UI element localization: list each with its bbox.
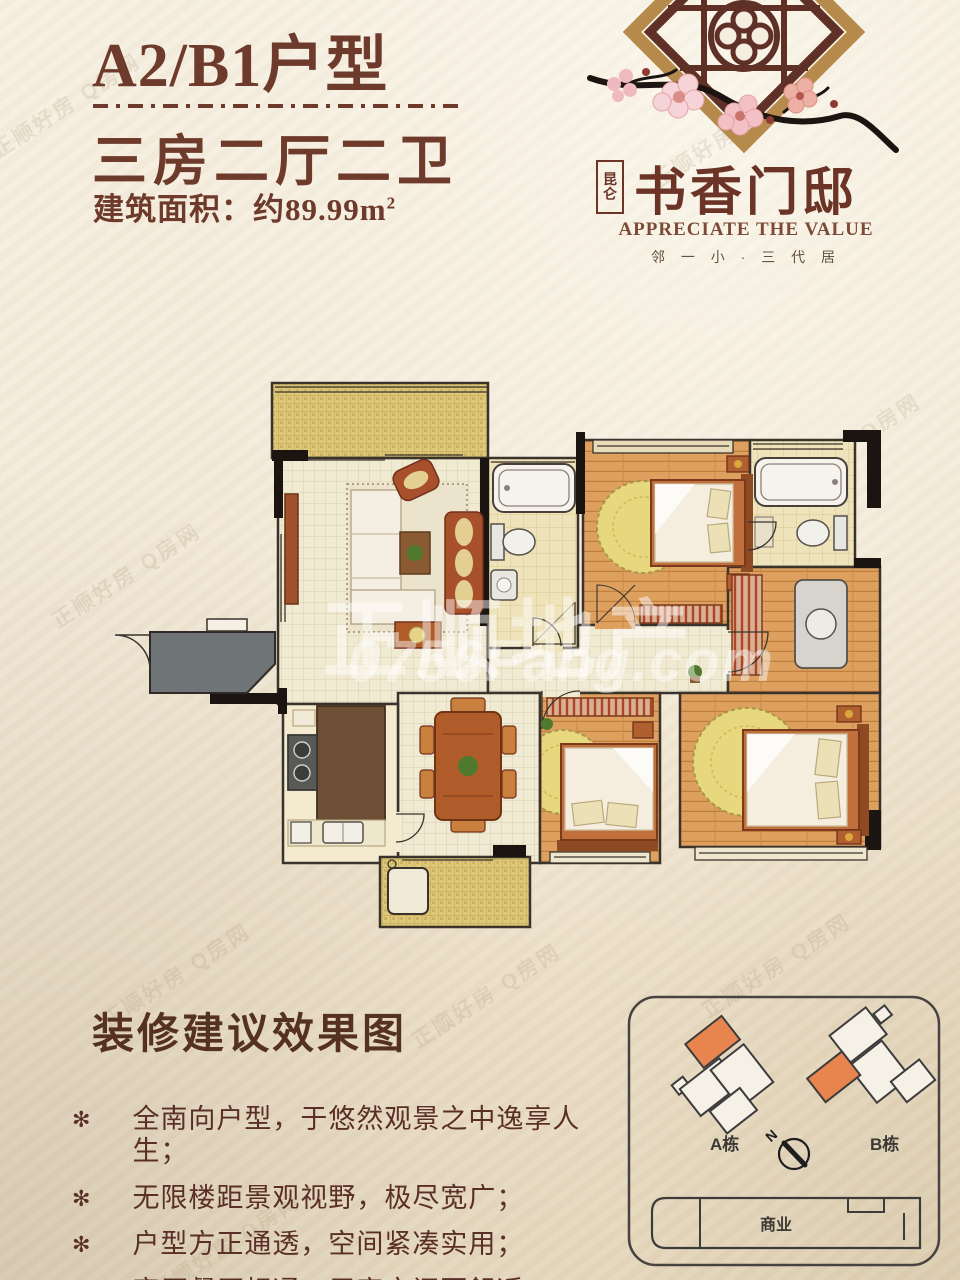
brand-name: 书香门邸 <box>634 150 858 225</box>
pillow <box>815 739 841 777</box>
pillow <box>572 800 604 825</box>
page-title: A2/B1户型 <box>92 14 388 104</box>
burner <box>294 742 310 758</box>
commercial-strip: 商业 <box>652 1198 920 1248</box>
pillow <box>707 489 731 520</box>
area-label: 建筑面积：约89.99m <box>93 192 387 227</box>
plant <box>407 545 423 561</box>
area-superscript: 2 <box>387 194 397 213</box>
entry-door-swing <box>115 635 150 670</box>
dining-furniture <box>420 698 516 832</box>
feature-text: 户型方正通透，空间紧凑实用； <box>132 1228 524 1260</box>
feature-text: 无限楼距景观视野，极尽宽广； <box>132 1182 524 1214</box>
balcony-south-fixtures <box>388 860 428 914</box>
toilet <box>797 520 829 546</box>
pillow <box>815 781 840 819</box>
toilet <box>503 529 535 555</box>
list-item: ✻无限楼距景观视野，极尽宽广； <box>72 1182 632 1214</box>
toilet-tank <box>491 524 504 560</box>
appliance <box>291 822 311 843</box>
nightstand <box>633 722 653 738</box>
compass-n-label: N <box>762 1126 780 1145</box>
commercial-label: 商业 <box>760 1215 792 1234</box>
feature-text: 全南向户型，于悠然观景之中逸享人生； <box>132 1103 632 1168</box>
kunlun-char-bottom: 仑 <box>603 187 617 202</box>
flower-bullet-icon: ✻ <box>72 1232 90 1258</box>
building-a <box>657 1016 781 1142</box>
chair <box>420 726 434 754</box>
entry-step <box>207 619 247 631</box>
brand-row: 昆 仑 书香门邸 <box>596 156 896 218</box>
door-gap <box>394 812 402 852</box>
diagonal-watermark: 正顺好房 Q房网 <box>406 936 567 1055</box>
chair <box>502 770 516 798</box>
kitchen-counter <box>317 706 385 820</box>
chair <box>420 770 434 798</box>
list-item: 客厅餐厅相通，居家空间更舒适。✻客厅餐厅相通，居家空间更舒适。 <box>72 1275 632 1280</box>
tv-cabinet <box>285 494 298 604</box>
site-plan: A栋 B栋 N 商业 <box>622 988 957 1280</box>
balcony-north <box>272 383 488 458</box>
counter-shelf <box>293 710 315 726</box>
list-item: ✻全南向户型，于悠然观景之中逸享人生； <box>72 1103 632 1168</box>
desk-shelf <box>547 698 653 716</box>
building-a-label: A栋 <box>710 1134 739 1154</box>
feature-list: ✻全南向户型，于悠然观景之中逸享人生； ✻无限楼距景观视野，极尽宽广； ✻户型方… <box>72 1103 632 1280</box>
headboard <box>557 840 661 851</box>
center-watermark-url: 0756Fang.com <box>348 628 775 695</box>
flower-bullet-icon: ✻ <box>72 1107 90 1133</box>
washing-machine <box>388 868 428 914</box>
building-b <box>795 998 940 1142</box>
flower-bullet-icon: ✻ <box>72 1186 90 1212</box>
table-plant <box>458 756 478 776</box>
section-heading: 装修建议效果图 <box>92 1000 407 1061</box>
brand-tagline-en: APPRECIATE THE VALUE <box>592 219 900 241</box>
pillow <box>606 802 638 827</box>
kunlun-seal: 昆 仑 <box>596 160 624 214</box>
flyer-page: 正顺好房 Q房网 正顺好房 Q房网 正顺好房 Q房网 正顺好房 Q房网 正顺好房… <box>0 0 960 1280</box>
toilet-tank <box>834 516 847 550</box>
brand-tagline-cn: 邻 一 小 · 三 代 居 <box>592 247 900 267</box>
chair <box>502 726 516 754</box>
dash-dot-divider <box>93 104 465 108</box>
area-text: 建筑面积：约89.99m2 <box>93 184 396 229</box>
burner <box>294 765 310 781</box>
compass-icon: N <box>762 1126 809 1169</box>
kunlun-char-top: 昆 <box>603 172 617 187</box>
brand-lattice-window-art <box>584 0 904 160</box>
feature-text: 客厅餐厅相通，居家空间更舒适。 <box>132 1275 552 1280</box>
pillow <box>708 523 731 553</box>
building-b-label: B栋 <box>870 1134 899 1154</box>
entry-area <box>115 619 275 693</box>
list-item: ✻户型方正通透，空间紧凑实用； <box>72 1228 632 1260</box>
chair <box>451 698 485 712</box>
